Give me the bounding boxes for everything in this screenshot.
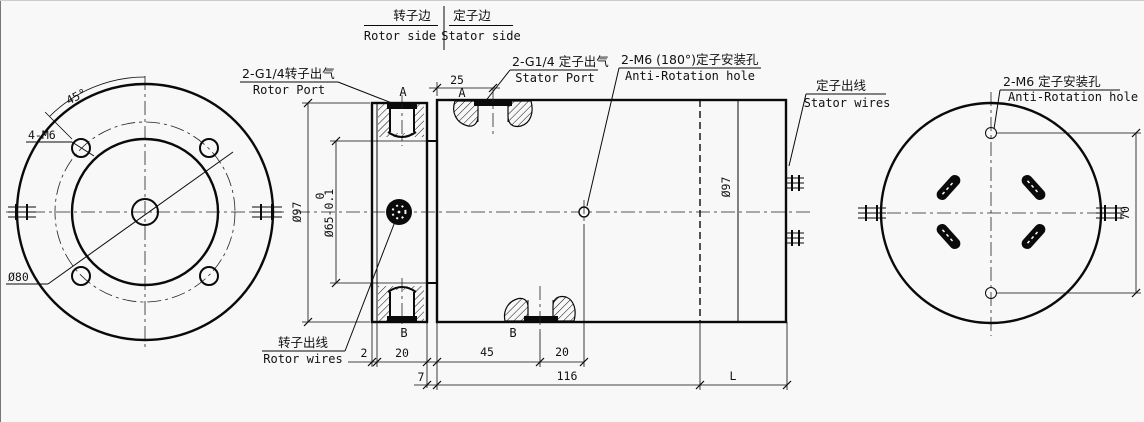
stator-wires-en: Stator wires	[804, 96, 891, 110]
rotor-wires-en: Rotor wires	[263, 352, 342, 366]
angle-45-label: 45°	[64, 85, 89, 107]
dim-70-label: 70	[1118, 206, 1132, 220]
rotor-wires-leader	[345, 219, 396, 351]
marker-b2: B	[509, 326, 516, 340]
rotor-wires-cn: 转子出线	[278, 335, 329, 350]
dim-ticks	[304, 84, 1140, 389]
anti-rotation-right-cn: 2-M6 定子安装孔	[1003, 74, 1101, 89]
marker-a1: A	[399, 85, 407, 99]
rotor-port-en: Rotor Port	[253, 83, 325, 97]
left-view-wire-lead-right	[252, 204, 282, 220]
anti-rotation-mid-en: Anti-Rotation hole	[625, 69, 755, 83]
anti-rotation-hole-section	[579, 200, 589, 367]
stator-wires-leader	[789, 94, 806, 166]
rotor-side-en: Rotor side	[364, 29, 436, 43]
stator-side-cn: 定子边	[453, 8, 491, 23]
four-m6-label: 4-M6	[28, 128, 56, 142]
dim-dia97-left: Ø97	[290, 202, 304, 223]
rotor-port-cn: 2-G1/4转子出气	[242, 66, 335, 81]
anti-rotation-mid-cn: 2-M6 (180°)定子安装孔	[621, 52, 759, 67]
dim-7: 7	[418, 370, 425, 384]
stator-wire-lead-lower	[786, 230, 804, 246]
section-view	[296, 88, 812, 367]
dim-25: 25	[450, 73, 464, 87]
slip-ring-drawing: 45° 4-M6 Ø80	[0, 0, 1144, 422]
rotor-wire-bundle	[386, 199, 412, 225]
dimension-extension-lines	[302, 82, 787, 390]
rotor-port-leader	[338, 82, 397, 105]
side-header: 转子边 Rotor side 定子边 Stator side	[364, 6, 521, 50]
engineering-drawing-canvas: 45° 4-M6 Ø80	[0, 0, 1144, 422]
left-view-wire-lead-left	[8, 204, 36, 220]
marker-b1: B	[400, 326, 407, 340]
anti-rotation-mid-leader	[587, 68, 619, 206]
stator-port-cn: 2-G1/4 定子出气	[512, 54, 609, 69]
dim-dia65: Ø65-0.1	[322, 189, 336, 238]
dim-L: L	[730, 369, 737, 383]
stator-side-en: Stator side	[441, 29, 520, 43]
dim-2: 2	[361, 346, 368, 360]
stator-wires-cn: 定子出线	[816, 78, 867, 93]
dim-20b: 20	[555, 345, 569, 359]
dim-45: 45	[480, 345, 494, 359]
dim-dia97-right: Ø97	[719, 177, 733, 198]
rotor-side-cn: 转子边	[393, 8, 431, 23]
dim-116: 116	[557, 369, 578, 383]
anti-rotation-right-en: Anti-Rotation hole	[1008, 90, 1138, 104]
anti-rotation-right-leader	[994, 90, 1000, 129]
left-view-rotor-flange: 45° 4-M6 Ø80	[6, 76, 284, 348]
marker-a2: A	[458, 86, 466, 100]
dia80-leader	[48, 152, 233, 284]
stator-wire-lead-upper	[786, 175, 804, 191]
right-view-stator-end: 70	[858, 92, 1141, 336]
stator-port-leader	[484, 70, 510, 103]
dim-20a: 20	[395, 346, 409, 360]
stator-port-en: Stator Port	[515, 71, 594, 85]
stator-body-outline	[437, 100, 786, 322]
dia80-label: Ø80	[8, 270, 29, 284]
